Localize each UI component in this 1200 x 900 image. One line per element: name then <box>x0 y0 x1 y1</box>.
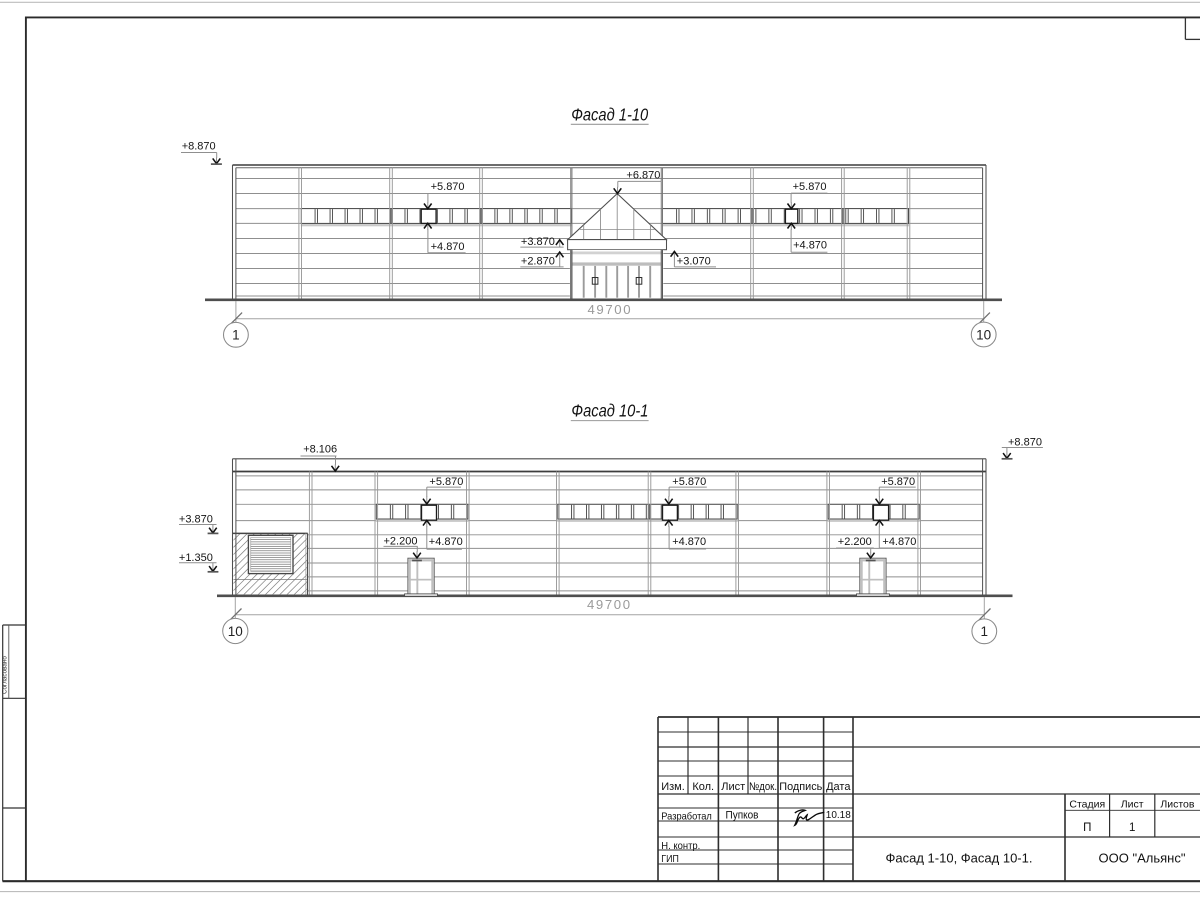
svg-text:+5.870: +5.870 <box>672 476 706 488</box>
svg-text:+5.870: +5.870 <box>431 181 465 193</box>
svg-text:Лист: Лист <box>721 781 745 793</box>
svg-text:49700: 49700 <box>587 597 632 612</box>
svg-text:1: 1 <box>1129 822 1135 834</box>
svg-text:+1.350: +1.350 <box>179 552 213 564</box>
svg-text:1: 1 <box>981 624 989 639</box>
svg-text:+4.870: +4.870 <box>429 536 463 548</box>
svg-text:+2.870: +2.870 <box>521 255 555 267</box>
svg-text:Фасад 10-1: Фасад 10-1 <box>571 400 648 420</box>
svg-text:+5.870: +5.870 <box>429 476 463 488</box>
svg-text:П: П <box>1083 822 1091 834</box>
svg-text:Разработал: Разработал <box>661 810 712 822</box>
svg-text:Фасад 1-10: Фасад 1-10 <box>571 104 648 124</box>
svg-text:Фасад 1-10, Фасад 10-1.: Фасад 1-10, Фасад 10-1. <box>886 850 1033 865</box>
svg-text:+3.870: +3.870 <box>179 514 213 526</box>
svg-text:+3.870: +3.870 <box>521 236 555 248</box>
svg-text:+5.870: +5.870 <box>793 181 827 193</box>
svg-text:Подпись: Подпись <box>779 781 822 793</box>
svg-text:+4.870: +4.870 <box>882 536 916 548</box>
svg-text:Согласовано: Согласовано <box>2 656 9 694</box>
svg-text:+2.200: +2.200 <box>384 535 418 547</box>
svg-text:+4.870: +4.870 <box>793 240 827 252</box>
svg-text:Кол.: Кол. <box>692 781 714 793</box>
svg-text:Листов: Листов <box>1160 798 1195 810</box>
svg-text:Дата: Дата <box>826 781 851 793</box>
svg-text:Лист: Лист <box>1121 798 1144 810</box>
svg-text:Изм.: Изм. <box>661 781 685 793</box>
svg-text:ООО "Альянс": ООО "Альянс" <box>1099 850 1186 865</box>
svg-text:+2.200: +2.200 <box>838 536 872 548</box>
svg-text:10: 10 <box>976 327 991 342</box>
svg-text:+8.870: +8.870 <box>182 141 216 153</box>
svg-text:+5.870: +5.870 <box>881 476 915 488</box>
svg-text:Н. контр.: Н. контр. <box>661 840 700 852</box>
svg-text:+6.870: +6.870 <box>626 170 660 182</box>
svg-text:49700: 49700 <box>587 302 632 317</box>
svg-text:№док.: №док. <box>749 781 777 793</box>
svg-text:Стадия: Стадия <box>1069 798 1105 810</box>
svg-text:+3.070: +3.070 <box>677 255 711 267</box>
svg-text:+4.870: +4.870 <box>431 241 465 253</box>
svg-text:10.18: 10.18 <box>826 810 851 821</box>
svg-text:1: 1 <box>232 328 240 343</box>
svg-text:+8.870: +8.870 <box>1008 436 1042 448</box>
svg-text:+4.870: +4.870 <box>672 536 706 548</box>
svg-text:ГИП: ГИП <box>661 853 679 865</box>
svg-text:10: 10 <box>228 624 243 639</box>
svg-text:+8.106: +8.106 <box>303 443 337 455</box>
svg-text:Пупков: Пупков <box>726 810 759 822</box>
